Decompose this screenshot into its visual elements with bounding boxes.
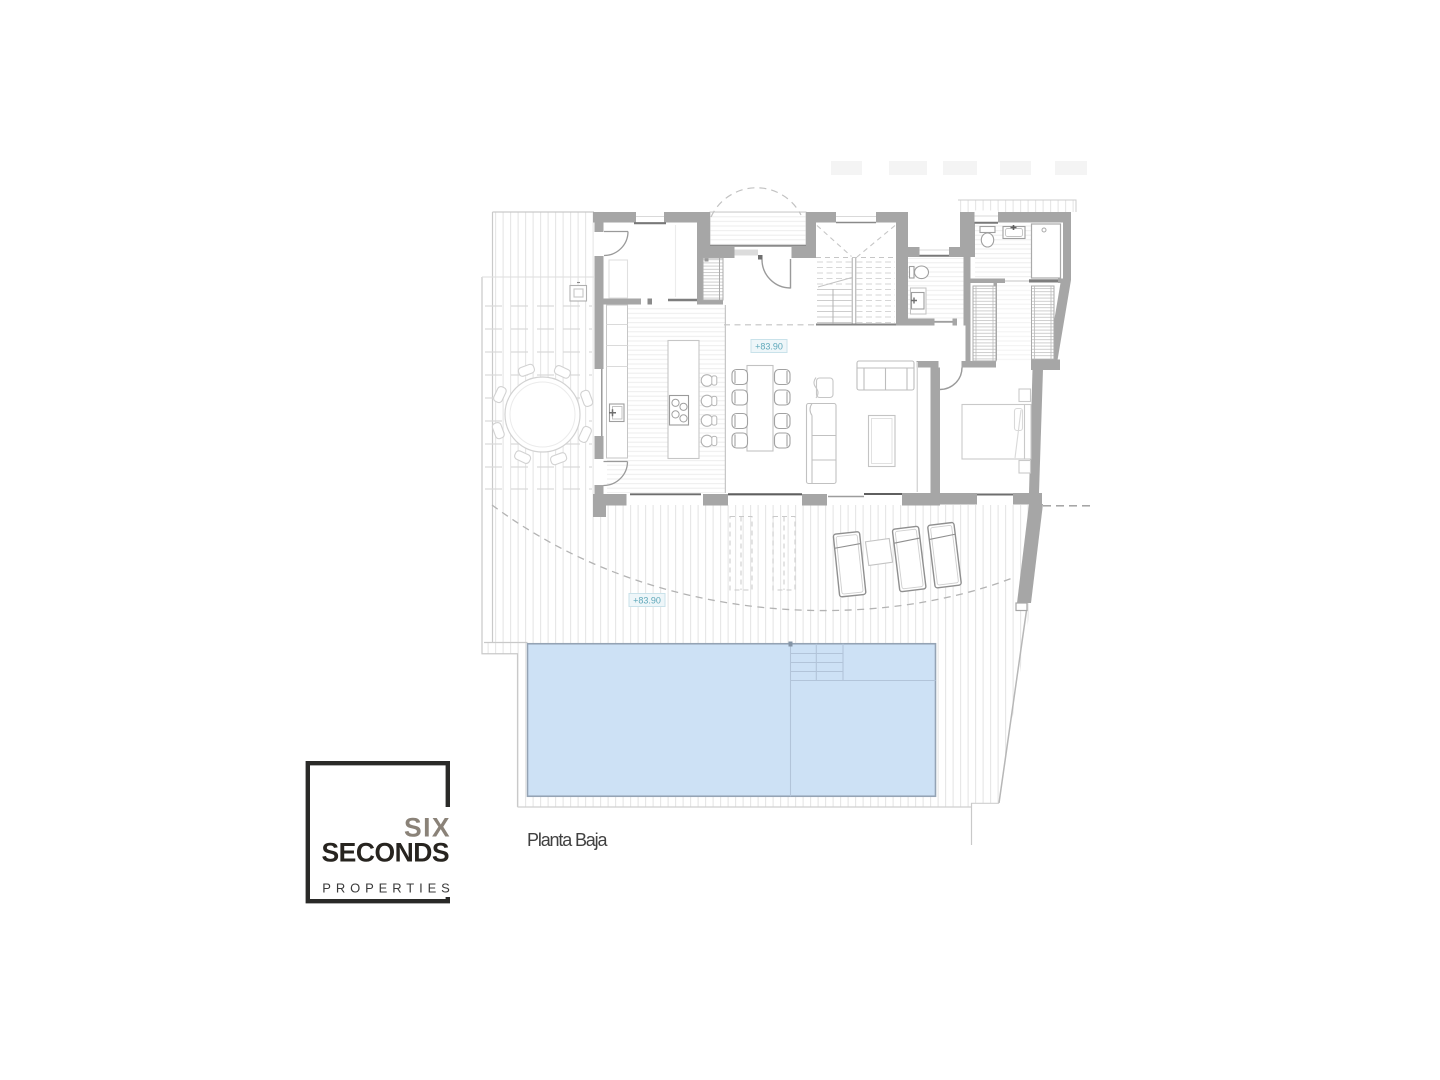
- svg-text:PROPERTIES: PROPERTIES: [322, 880, 450, 895]
- svg-text:+83.90: +83.90: [633, 596, 661, 606]
- svg-text:+83.90: +83.90: [755, 342, 783, 352]
- svg-text:Planta Baja: Planta Baja: [527, 830, 608, 850]
- svg-text:SECONDS: SECONDS: [322, 838, 450, 868]
